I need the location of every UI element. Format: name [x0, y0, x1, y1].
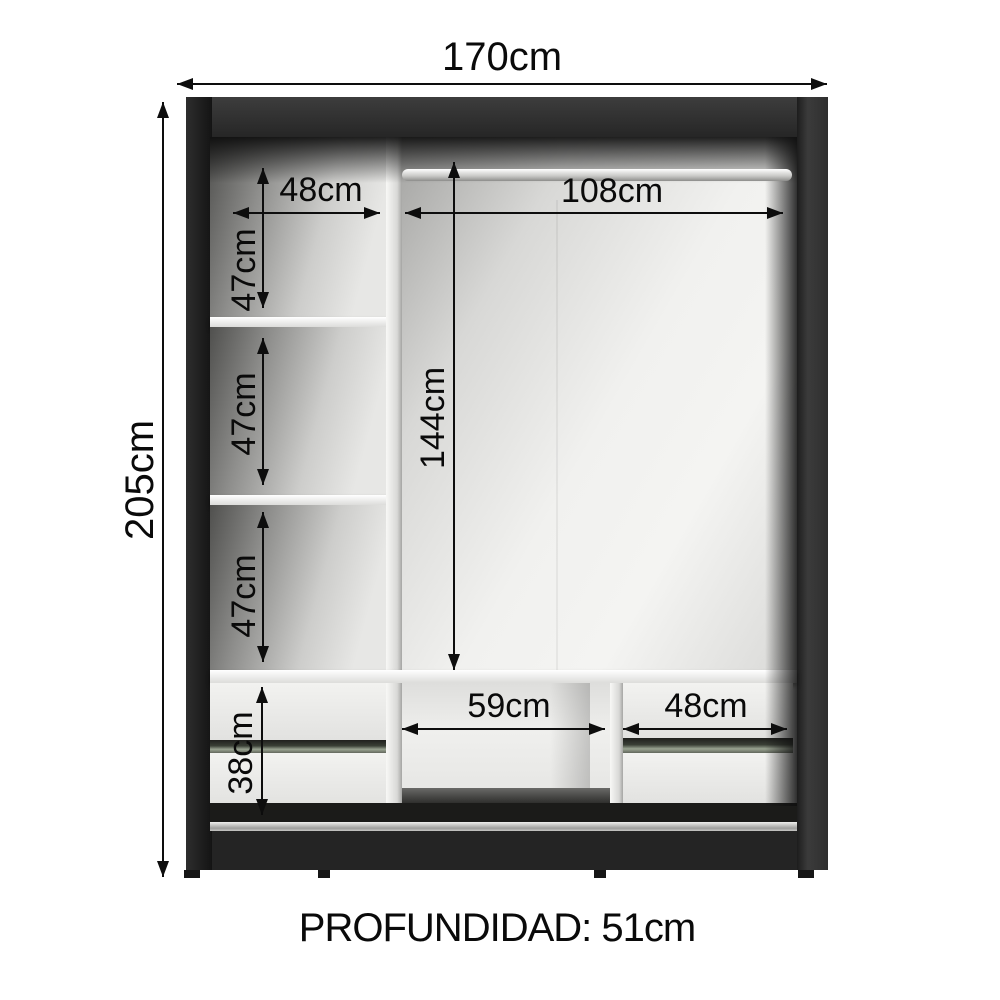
interior-right-shadow	[765, 137, 797, 806]
foot-4	[798, 870, 814, 878]
interior-floor	[210, 803, 797, 822]
bottom-shelf	[210, 670, 797, 683]
dim-arrow-right-drawers-width	[623, 728, 787, 730]
dim-label-compartment-3: 47cm	[227, 554, 261, 637]
dim-arrow-compartment-2	[262, 338, 264, 485]
dim-label-total-height: 205cm	[120, 420, 160, 540]
drawer-divider-right	[610, 683, 623, 806]
dim-arrow-rod-width	[405, 212, 783, 214]
frame-left-face	[186, 97, 212, 870]
dim-label-compartment-2: 47cm	[227, 372, 261, 455]
frame-top-face	[186, 97, 828, 137]
dim-arrow-compartment-1	[262, 168, 264, 308]
middle-opening-shadow	[550, 683, 590, 788]
dim-label-left-shelf-width: 48cm	[279, 173, 362, 207]
dim-arrow-left-shelf-width	[233, 212, 380, 214]
foot-2	[318, 870, 330, 878]
dim-arrow-drawers-height	[261, 687, 263, 815]
dim-label-right-drawers-width: 48cm	[664, 689, 747, 723]
foot-1	[184, 870, 200, 878]
foot-3	[594, 870, 606, 878]
frame-right-face	[797, 97, 828, 870]
dim-label-main-height: 144cm	[416, 367, 450, 469]
dim-label-total-width: 170cm	[442, 37, 562, 77]
back-panel-seam	[556, 200, 558, 670]
dim-arrow-total-width	[177, 83, 827, 85]
dim-arrow-compartment-3	[262, 512, 264, 662]
main-compartment	[402, 137, 797, 670]
dim-arrow-total-height	[162, 102, 164, 877]
dim-arrow-middle-width	[402, 728, 605, 730]
dim-arrow-main-height	[453, 162, 455, 670]
sliding-door-track	[210, 822, 797, 831]
dim-label-rod-width: 108cm	[561, 174, 663, 208]
vertical-divider	[386, 137, 402, 683]
drawer-divider-left	[386, 683, 402, 806]
dim-label-middle-width: 59cm	[467, 689, 550, 723]
footer-depth-label: PROFUNDIDAD: 51cm	[299, 908, 695, 948]
shelf-1	[210, 317, 402, 327]
dim-label-compartment-1: 47cm	[227, 228, 261, 311]
shelf-2	[210, 495, 402, 505]
wardrobe-dimension-diagram: 170cm 205cm 48cm 108cm 47cm 47cm 47cm 14…	[0, 0, 1000, 1000]
dim-label-drawers-height: 38cm	[224, 711, 258, 794]
